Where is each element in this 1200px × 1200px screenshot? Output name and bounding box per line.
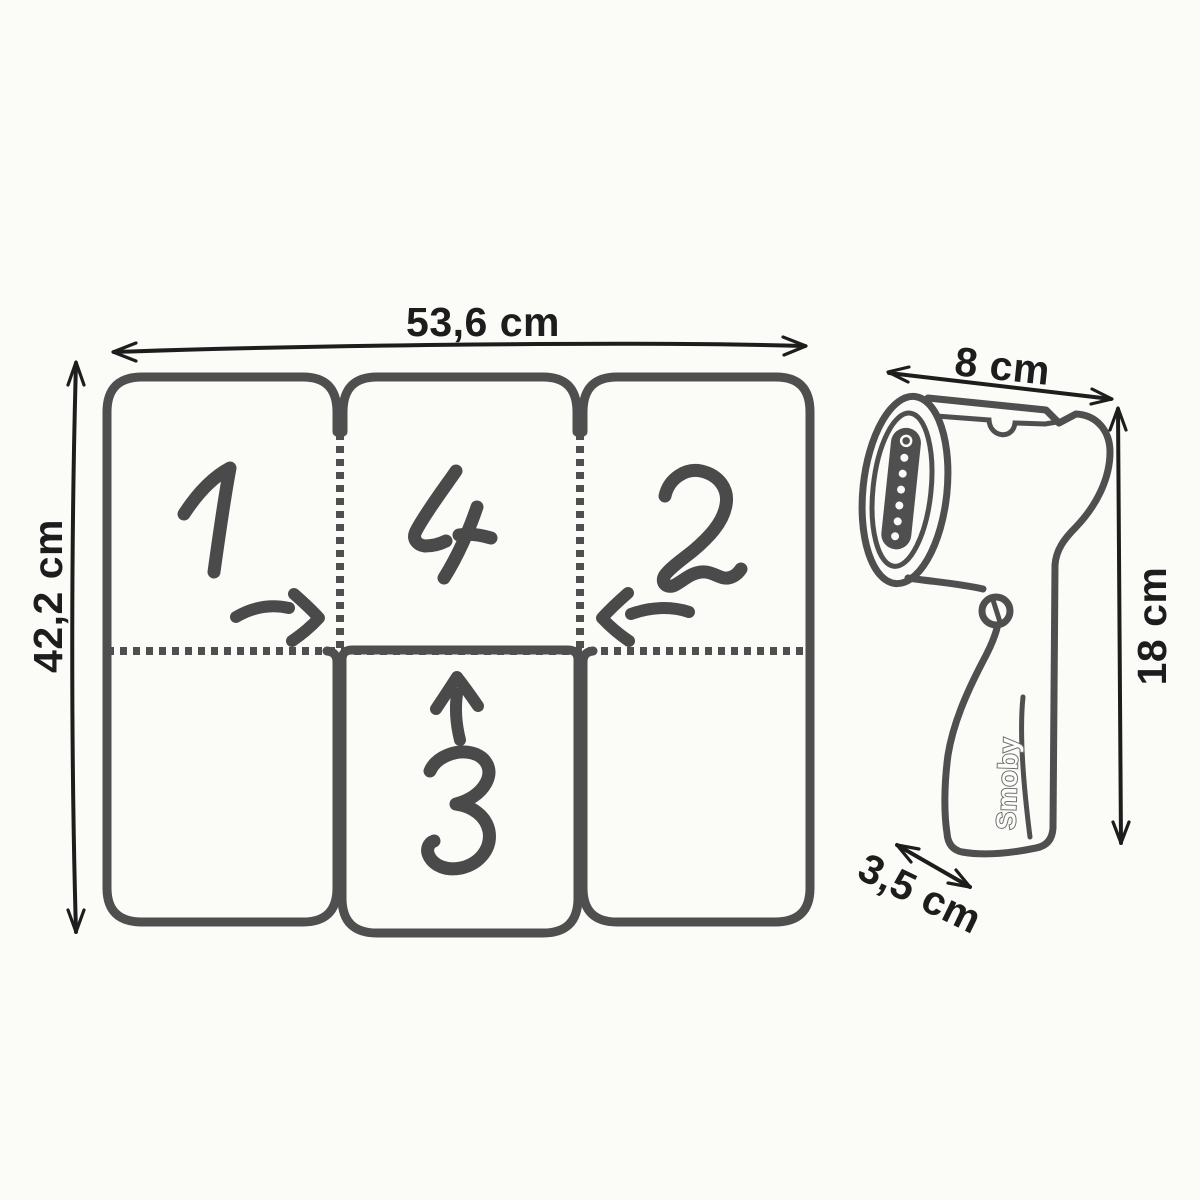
steamer-height-label: 18 cm [1129, 567, 1175, 686]
steamer-top-seam [936, 416, 1057, 435]
fold-arrow-up-icon [436, 677, 478, 740]
mat-fold-diagram: 53,6 cm 42,2 cm [25, 299, 810, 933]
mat-width-arrow [114, 344, 805, 352]
steamer-width-label: 8 cm [953, 338, 1053, 394]
mat-fold-arrows [236, 593, 689, 740]
steamer-trigger-slot [993, 600, 1000, 622]
panel-bottom-left [107, 651, 337, 922]
panel-number-3 [428, 752, 490, 869]
mat-height-dimension: 42,2 cm [25, 362, 84, 932]
panel-number-2 [663, 470, 741, 586]
fold-arrow-right-icon [236, 594, 319, 641]
mat-width-dimension: 53,6 cm [113, 299, 806, 361]
panel-top-middle [343, 377, 577, 432]
steamer-height-arrow [1118, 409, 1121, 843]
mat-width-label: 53,6 cm [406, 299, 560, 345]
steamer-brand-label: Smoby [991, 737, 1024, 831]
steamer-diagram: Smoby 8 cm 18 cm 3,5 cm [851, 338, 1175, 943]
product-dimension-image: 53,6 cm 42,2 cm [0, 0, 1200, 1200]
steamer-underside-line [908, 578, 983, 589]
panel-number-1 [184, 468, 230, 572]
diagram-svg: 53,6 cm 42,2 cm [0, 0, 1200, 1200]
steamer-width-dimension: 8 cm [888, 338, 1112, 404]
panel-number-4 [415, 471, 491, 578]
steamer-head [853, 392, 956, 588]
steamer-height-dimension: 18 cm [1110, 408, 1175, 843]
steamer-depth-dimension: 3,5 cm [851, 844, 989, 943]
steamer-body: Smoby [908, 398, 1110, 854]
panel-bottom-right [583, 651, 810, 922]
mat-height-label: 42,2 cm [25, 519, 71, 673]
mat-height-arrow [72, 363, 76, 932]
fold-arrow-left-icon [602, 593, 689, 641]
mat-panel-numbers [184, 468, 741, 869]
